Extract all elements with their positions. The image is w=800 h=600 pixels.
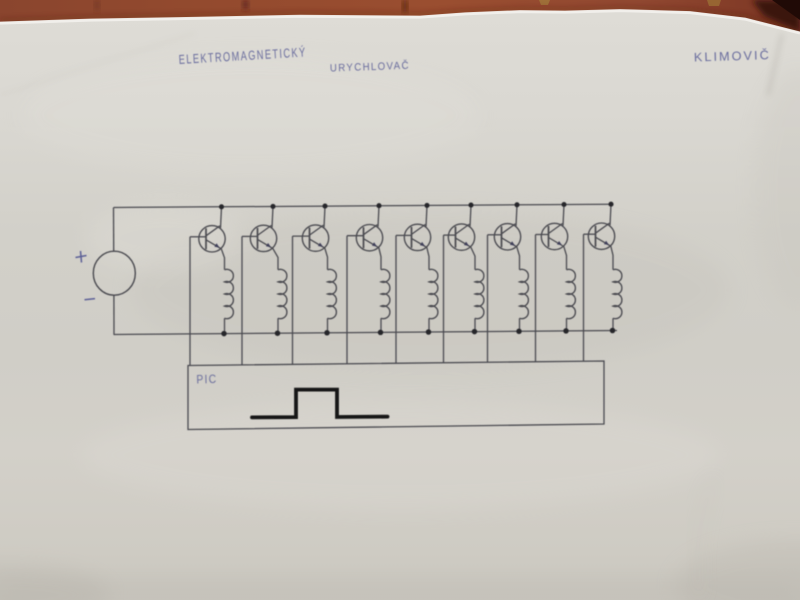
svg-text:KLIMOVIČ: KLIMOVIČ (694, 47, 771, 64)
svg-text:PIC: PIC (196, 372, 217, 387)
